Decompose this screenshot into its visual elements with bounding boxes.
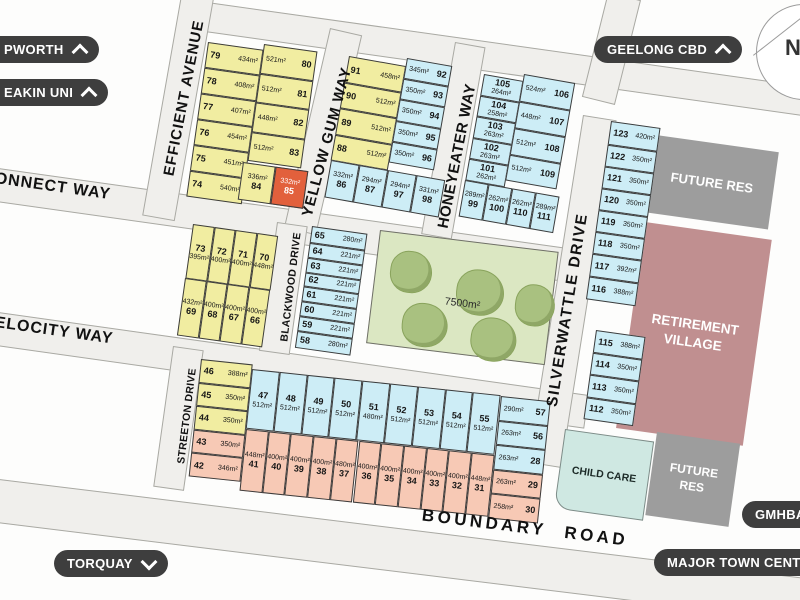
- lot-area: 408m²: [234, 82, 255, 92]
- lot-area: 400m²: [231, 259, 252, 269]
- lot-number: 54: [451, 411, 462, 421]
- lot-area: 512m²: [252, 401, 272, 410]
- chevron-up-icon: [81, 86, 98, 103]
- lot-area: 512m²: [375, 98, 396, 108]
- lot-area: 221m²: [338, 266, 359, 276]
- lot-area: 350m²: [401, 107, 422, 117]
- chevron-up-icon: [71, 43, 88, 60]
- lot-area: 345m²: [408, 66, 429, 76]
- lot-area: 448m²: [520, 112, 541, 122]
- lot-number: 111: [536, 211, 551, 222]
- marker-deakin-uni[interactable]: EAKIN UNI: [0, 79, 108, 106]
- lot-number: 68: [207, 310, 218, 320]
- lot-number: 72: [216, 246, 227, 256]
- marker-torquay-label: TORQUAY: [67, 556, 133, 571]
- lot-number: 85: [283, 186, 294, 196]
- lot-area: 512m²: [335, 409, 355, 418]
- lot-area: 350m²: [397, 128, 418, 138]
- park-reserve: 7500m²: [366, 230, 559, 365]
- lot-number: 51: [368, 403, 379, 413]
- lot-111[interactable]: 289m²111: [529, 193, 559, 234]
- lot-number: 108: [544, 143, 560, 155]
- lot-area: 280m²: [342, 235, 363, 245]
- lot-number: 122: [609, 152, 625, 163]
- lot-number: 38: [316, 467, 327, 477]
- lot-number: 35: [384, 474, 395, 484]
- lot-area: 280m²: [327, 340, 348, 350]
- lot-number: 49: [313, 397, 324, 407]
- lot-number: 76: [199, 128, 210, 138]
- lot-area: 512m²: [280, 404, 300, 413]
- marker-major-town-centre-label: MAJOR TOWN CENT: [667, 555, 800, 570]
- lot-number: 93: [432, 90, 443, 101]
- tree-icon: [388, 249, 435, 296]
- lot-number: 31: [474, 484, 485, 494]
- lot-number: 98: [421, 195, 432, 206]
- lot-number: 71: [237, 249, 248, 259]
- lot-number: 30: [525, 505, 536, 515]
- marker-epworth[interactable]: PWORTH: [0, 36, 99, 63]
- lot-area: 290m²: [503, 405, 523, 414]
- marker-gmhba-label: GMHBA: [755, 507, 800, 522]
- lot-area: 263m²: [496, 478, 516, 487]
- lot-area: 540m²: [219, 185, 240, 195]
- lot-area: 350m²: [610, 408, 631, 418]
- lot-number: 119: [600, 217, 616, 228]
- lot-number: 121: [606, 173, 622, 184]
- lot-number: 40: [271, 462, 282, 472]
- lot-number: 65: [314, 230, 325, 240]
- lot-number: 89: [341, 117, 352, 128]
- lot-area: 350m²: [220, 441, 240, 450]
- lot-area: 395m²: [189, 253, 210, 263]
- lot-area: 388m²: [620, 341, 641, 351]
- estate-masterplan-map: 7500m² FUTURE RES RETIREMENT VILLAGE CHI…: [0, 0, 800, 600]
- lot-number: 42: [193, 460, 204, 470]
- lot-number: 29: [527, 480, 538, 490]
- lot-number: 44: [198, 414, 209, 424]
- lot-area: 350m²: [622, 221, 643, 231]
- lot-number: 120: [603, 195, 619, 206]
- lot-area: 388m²: [227, 370, 247, 379]
- lot-number: 79: [210, 51, 221, 61]
- lot-number: 69: [185, 307, 196, 317]
- lot-number: 95: [425, 132, 436, 143]
- lot-number: 55: [479, 414, 490, 424]
- lot-number: 118: [597, 239, 613, 250]
- lot-number: 94: [429, 111, 440, 122]
- lot-number: 74: [191, 180, 202, 190]
- lot-number: 63: [310, 261, 321, 271]
- lot-area: 448m²: [253, 262, 274, 272]
- future-res-bottom-parcel[interactable]: FUTURE RES: [645, 432, 740, 527]
- lot-area: 263m²: [498, 454, 518, 463]
- lot-number: 83: [289, 147, 300, 157]
- lot-area: 400m²: [210, 256, 231, 266]
- lot-83[interactable]: 512m²83: [248, 132, 306, 169]
- chevron-up-icon: [715, 43, 732, 60]
- lot-number: 56: [532, 432, 543, 442]
- lot-area: 512m²: [390, 415, 410, 424]
- chevron-down-icon: [140, 553, 157, 570]
- lot-area: 451m²: [223, 159, 244, 169]
- lot-area: 258m²: [493, 503, 513, 512]
- lot-area: 263m²: [501, 429, 521, 438]
- lot-number: 112: [588, 404, 604, 415]
- lot-area: 350m²: [225, 394, 245, 403]
- lot-number: 81: [297, 89, 308, 99]
- marker-major-town-centre[interactable]: MAJOR TOWN CENT: [654, 549, 800, 576]
- lot-number: 67: [228, 313, 239, 323]
- lot-number: 33: [429, 479, 440, 489]
- marker-deakin-uni-label: EAKIN UNI: [4, 85, 73, 100]
- lot-number: 60: [304, 305, 315, 315]
- lot-number: 39: [293, 465, 304, 475]
- lot-number: 50: [341, 400, 352, 410]
- lot-number: 41: [248, 460, 259, 470]
- lot-number: 61: [306, 290, 317, 300]
- lot-area: 521m²: [265, 56, 286, 66]
- lot-number: 57: [535, 407, 546, 417]
- lot-area: 388m²: [613, 288, 634, 298]
- lot-area: 512m²: [307, 407, 327, 416]
- lot-area: 420m²: [635, 133, 656, 143]
- lot-area: 512m²: [445, 421, 465, 430]
- lot-number: 82: [293, 118, 304, 128]
- lot-area: 458m²: [380, 71, 401, 81]
- lot-number: 47: [258, 391, 269, 401]
- lot-area: 350m²: [222, 417, 242, 426]
- lot-area: 512m²: [511, 165, 532, 175]
- lot-number: 46: [203, 367, 214, 377]
- lot-area: 392m²: [616, 265, 637, 275]
- lot-number: 32: [451, 481, 462, 491]
- lot-number: 109: [539, 169, 555, 181]
- lot-number: 28: [530, 456, 541, 466]
- lot-area: 221m²: [334, 295, 355, 305]
- lot-number: 62: [308, 275, 319, 285]
- tree-icon: [468, 315, 519, 364]
- lot-area: 454m²: [227, 133, 248, 143]
- lot-area: 512m²: [371, 124, 392, 134]
- lot-area: 221m²: [332, 310, 353, 320]
- lot-number: 99: [467, 199, 478, 210]
- lot-area: 448m²: [257, 114, 278, 124]
- marker-gmhba[interactable]: GMHBA: [742, 501, 800, 528]
- lot-area: 350m²: [617, 364, 638, 374]
- lot-number: 97: [393, 190, 404, 201]
- lot-area: 512m²: [261, 85, 282, 95]
- lot-number: 107: [548, 116, 564, 128]
- lot-number: 84: [251, 182, 262, 192]
- lot-number: 114: [595, 359, 611, 370]
- lot-number: 53: [424, 409, 435, 419]
- lot-area: 524m²: [525, 85, 546, 95]
- compass-north-label: N: [785, 35, 800, 61]
- lot-number: 96: [421, 153, 432, 164]
- lot-number: 70: [259, 252, 270, 262]
- lot-number: 64: [312, 246, 323, 256]
- lot-area: 350m²: [614, 386, 635, 396]
- lot-area: 221m²: [330, 324, 351, 334]
- lot-number: 92: [436, 69, 447, 80]
- lot-84[interactable]: 336m²84: [238, 162, 276, 204]
- lot-number: 52: [396, 406, 407, 416]
- lot-area: 350m²: [625, 199, 646, 209]
- lot-42[interactable]: 42346m²: [189, 453, 243, 482]
- lot-number: 73: [195, 243, 206, 253]
- lot-number: 78: [206, 77, 217, 87]
- lot-number: 66: [249, 316, 260, 326]
- lot-area: 350m²: [628, 178, 649, 188]
- lot-area: 350m²: [405, 86, 426, 96]
- lot-area: 512m²: [418, 418, 438, 427]
- lot-area: 512m²: [366, 150, 387, 160]
- lot-number: 113: [591, 382, 607, 393]
- lot-number: 110: [512, 207, 528, 219]
- lot-number: 80: [301, 60, 312, 70]
- tree-icon: [399, 301, 450, 350]
- tree-icon: [453, 267, 506, 319]
- child-care-parcel[interactable]: CHILD CARE: [554, 429, 654, 521]
- lot-number: 115: [598, 337, 614, 348]
- lot-number: 34: [406, 477, 417, 487]
- lot-area: 346m²: [218, 464, 238, 473]
- lot-number: 43: [196, 437, 207, 447]
- lot-number: 75: [195, 154, 206, 164]
- lot-number: 45: [201, 390, 212, 400]
- marker-torquay[interactable]: TORQUAY: [54, 550, 168, 577]
- lot-number: 58: [299, 335, 310, 345]
- lot-area: 221m²: [336, 280, 357, 290]
- lot-area: 350m²: [619, 243, 640, 253]
- lot-number: 116: [591, 284, 607, 295]
- marker-geelong-cbd[interactable]: GEELONG CBD: [594, 36, 742, 63]
- lot-number: 77: [202, 102, 213, 112]
- lot-area: 512m²: [515, 139, 536, 149]
- lot-number: 59: [302, 319, 313, 329]
- marker-geelong-cbd-label: GEELONG CBD: [607, 42, 707, 57]
- lot-number: 37: [338, 469, 349, 479]
- lot-number: 123: [613, 129, 629, 140]
- lot-number: 48: [285, 394, 296, 404]
- lot-area: 350m²: [394, 149, 415, 159]
- lot-area: 221m²: [340, 251, 361, 261]
- lot-number: 36: [361, 472, 372, 482]
- lot-area: 407m²: [230, 107, 251, 117]
- lot-number: 86: [336, 180, 347, 191]
- lot-number: 106: [553, 89, 569, 101]
- lot-area: 434m²: [238, 56, 259, 66]
- marker-epworth-label: PWORTH: [4, 42, 64, 57]
- lot-area: 480m²: [362, 412, 382, 421]
- lot-area: 512m²: [253, 143, 274, 153]
- lot-area: 350m²: [632, 156, 653, 166]
- lot-number: 88: [336, 144, 347, 155]
- lot-area: 512m²: [473, 424, 493, 433]
- lot-number: 100: [488, 203, 504, 215]
- future-res-top-parcel[interactable]: FUTURE RES: [645, 135, 779, 229]
- lot-number: 117: [594, 261, 610, 272]
- lot-number: 87: [364, 185, 375, 196]
